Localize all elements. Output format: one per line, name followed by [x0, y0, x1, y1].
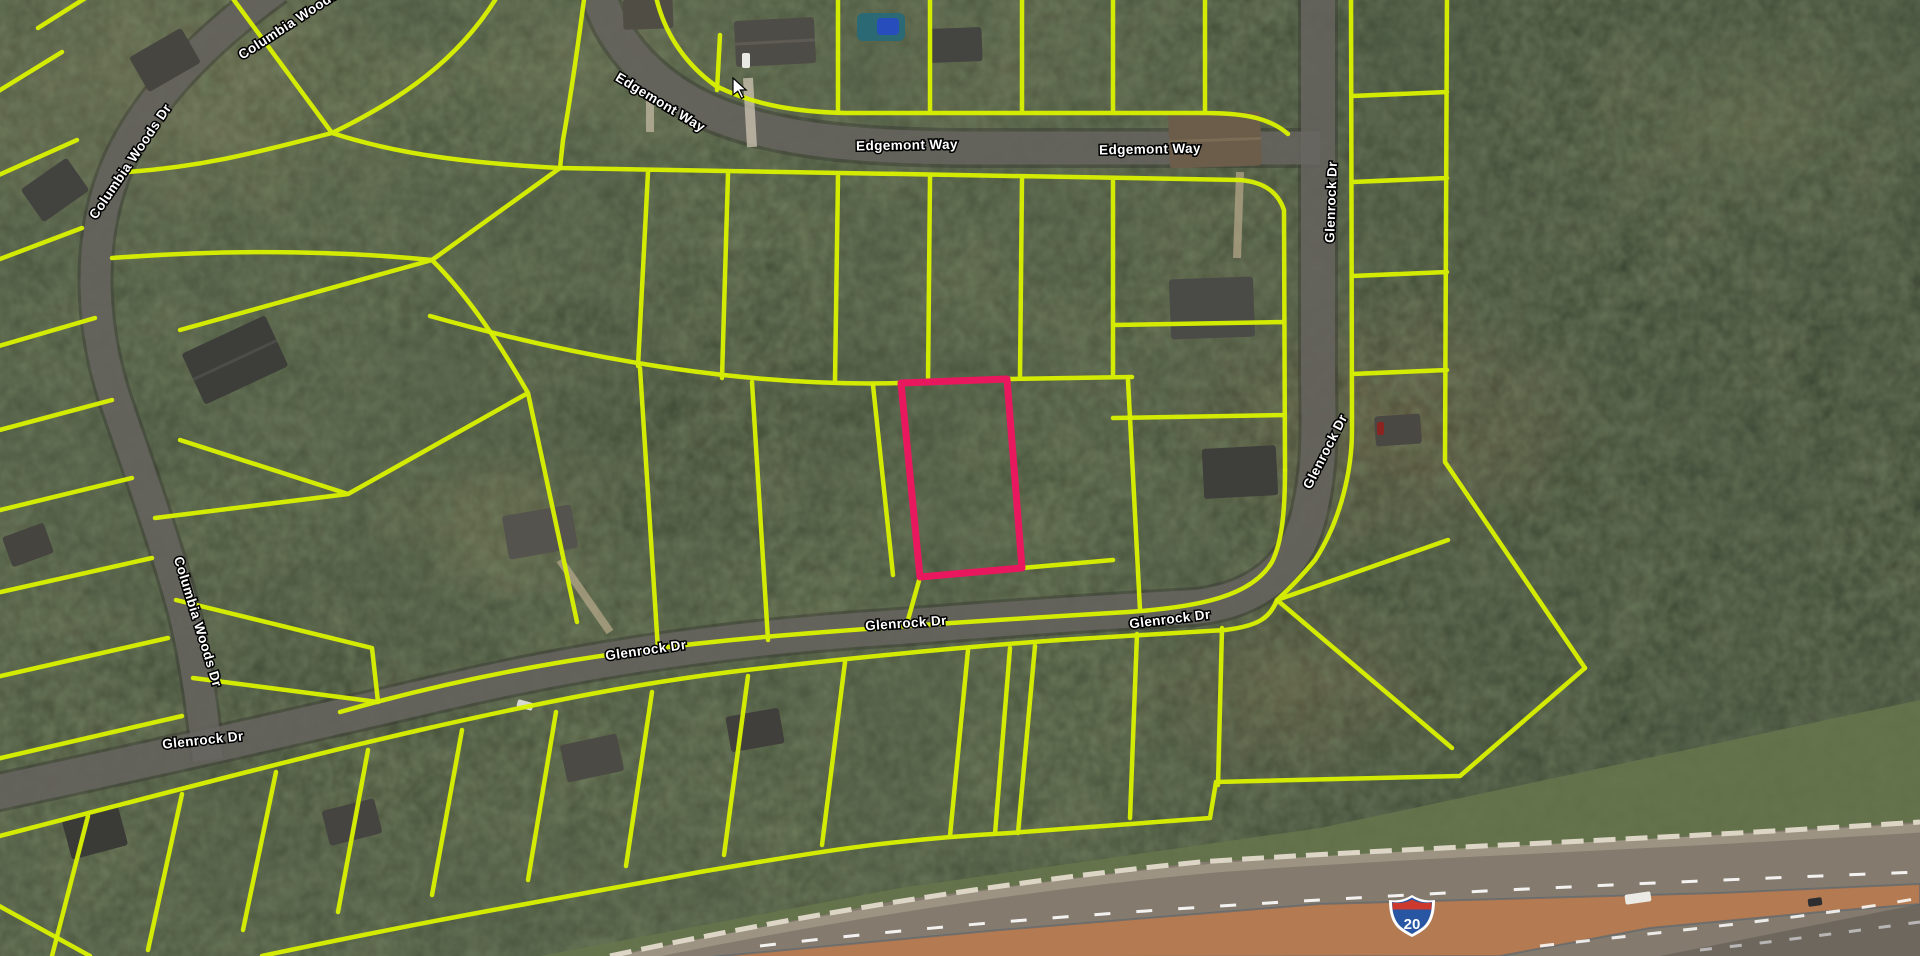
- house: [1202, 445, 1279, 499]
- map-canvas[interactable]: Edgemont WayEdgemont WayEdgemont WayColu…: [0, 0, 1920, 956]
- swimming-pool: [857, 13, 905, 41]
- street-label: Glenrock Dr: [1322, 161, 1340, 243]
- street-label: Edgemont Way: [1099, 141, 1201, 158]
- car: [1377, 422, 1384, 435]
- house: [927, 27, 982, 63]
- house: [1169, 277, 1255, 340]
- car: [742, 53, 750, 68]
- street-label: Edgemont Way: [856, 137, 958, 154]
- shield-route-number: 20: [1404, 916, 1421, 933]
- house: [1168, 111, 1262, 168]
